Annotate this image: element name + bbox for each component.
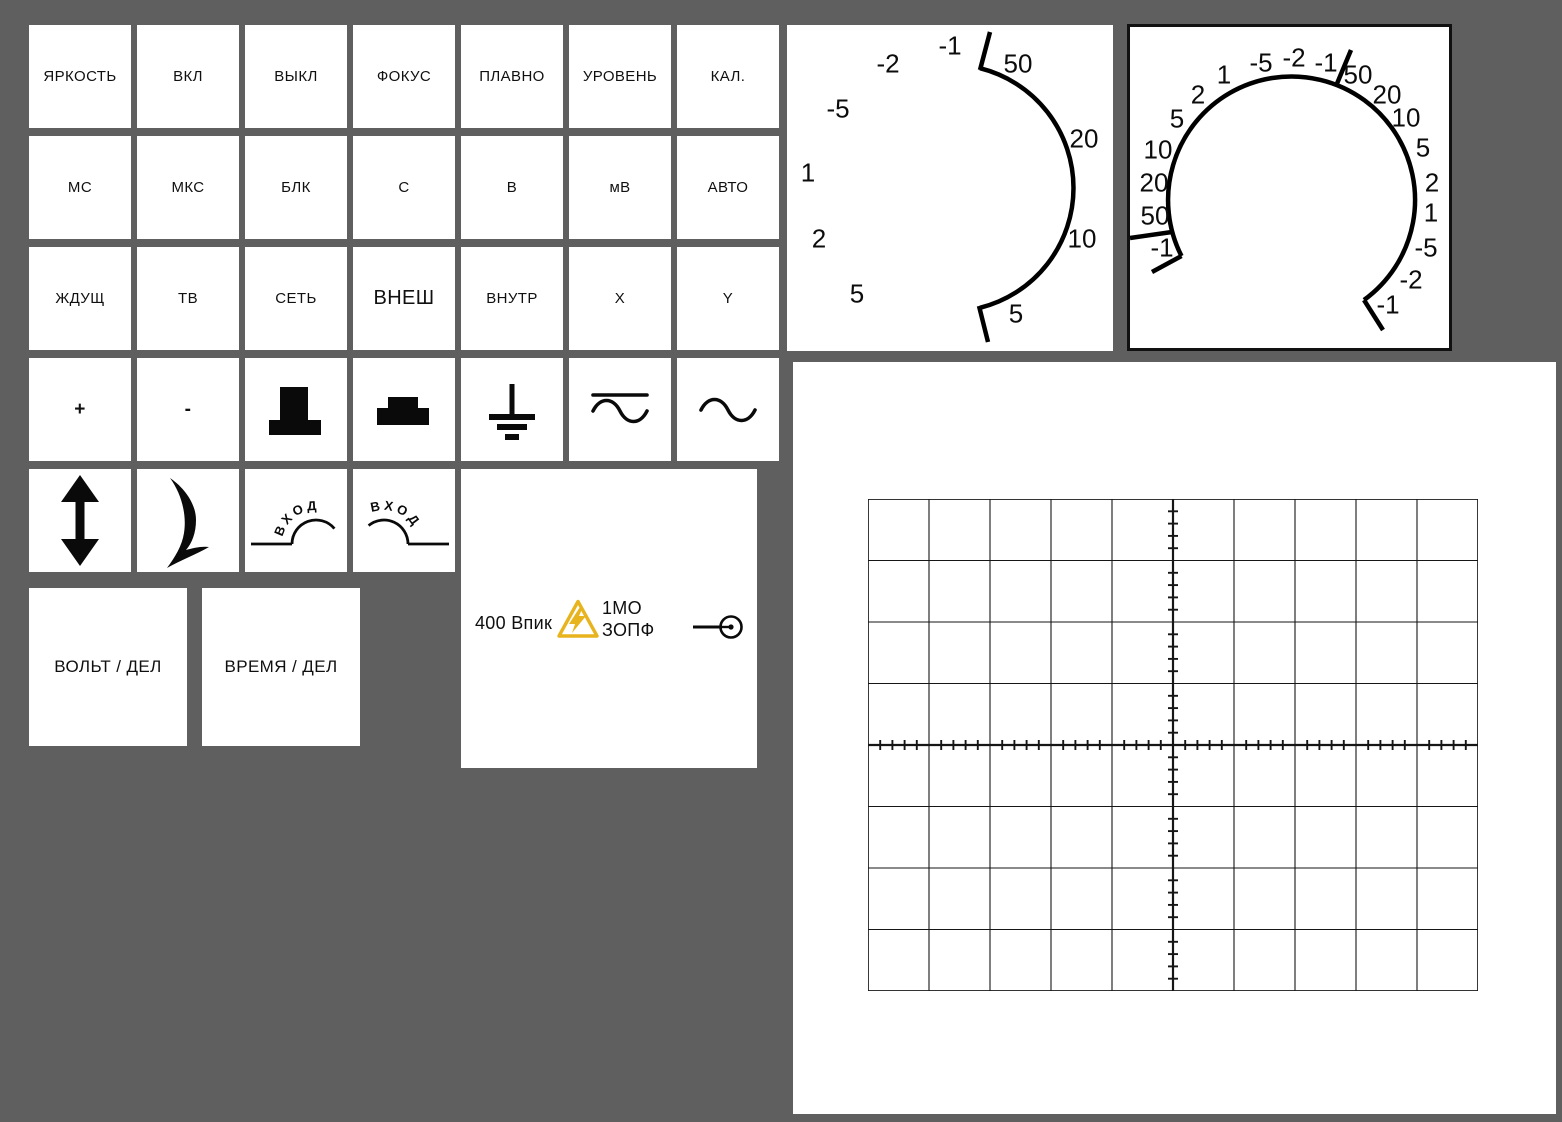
dial-scale-number: -5 (1414, 233, 1437, 264)
button-ac-coupling[interactable] (677, 358, 779, 461)
dial-scale-number: 5 (1170, 104, 1184, 135)
input-label-right: ВХОД (369, 498, 424, 531)
button-level[interactable]: УРОВЕНЬ (569, 25, 671, 128)
dial-scale-number: 20 (1140, 168, 1169, 199)
vertical-arrow-icon (29, 469, 131, 572)
button-step-tall[interactable] (245, 358, 347, 461)
button-mains[interactable]: СЕТЬ (245, 247, 347, 350)
dial-scale-number: 5 (1416, 133, 1430, 164)
volt-div-panel[interactable]: ВОЛЬТ / ДЕЛ (29, 588, 187, 746)
dial-scale-number: -2 (1399, 265, 1422, 296)
button-plus[interactable]: + (29, 358, 131, 461)
dial-scale-number: 2 (812, 224, 826, 255)
dial-scale-number: 10 (1392, 103, 1421, 134)
button-minus[interactable]: - (137, 358, 239, 461)
button-external[interactable]: ВНЕШ (353, 247, 455, 350)
button-ground[interactable] (461, 358, 563, 461)
dial-scale-number: 1 (1424, 198, 1438, 229)
button-on[interactable]: ВКЛ (137, 25, 239, 128)
sine-icon (677, 358, 779, 461)
button-v[interactable]: В (461, 136, 563, 239)
input-ratings-panel: 400 Впик 1МО ЗОПФ (461, 469, 757, 768)
button-mv[interactable]: мВ (569, 136, 671, 239)
ac-dc-icon (569, 358, 671, 461)
probe-connector-icon (693, 613, 749, 641)
button-beam-curve[interactable] (137, 469, 239, 572)
dial-scale-number: -1 (1150, 233, 1173, 264)
dial-scale-number: -2 (876, 49, 899, 80)
dial-scale-number: -1 (938, 31, 961, 62)
graticule-grid (868, 499, 1478, 991)
dial-scale-number: 5 (850, 279, 864, 310)
step-low-icon (353, 358, 455, 461)
button-s[interactable]: С (353, 136, 455, 239)
dial-scale-number: 2 (1425, 168, 1439, 199)
input-arc-left-icon: ВХОД (245, 469, 347, 572)
dial-scale-number: 2 (1191, 80, 1205, 111)
button-step-low[interactable] (353, 358, 455, 461)
button-input-right[interactable]: ВХОД (353, 469, 455, 572)
button-auto[interactable]: АВТО (677, 136, 779, 239)
crt-graticule-panel (793, 362, 1556, 1114)
dial-scale-number: 10 (1144, 135, 1173, 166)
dial-scale-number: -5 (1249, 48, 1272, 79)
high-voltage-warning-icon (556, 598, 600, 640)
input-arc-right-icon: ВХОД (353, 469, 455, 572)
button-focus[interactable]: ФОКУС (353, 25, 455, 128)
input-impedance-label: 1МО ЗОПФ (602, 597, 655, 641)
button-brightness[interactable]: ЯРКОСТЬ (29, 25, 131, 128)
dial-scale-number: 50 (1004, 49, 1033, 80)
time-div-label: ВРЕМЯ / ДЕЛ (224, 657, 337, 677)
volt-div-label: ВОЛЬТ / ДЕЛ (54, 657, 161, 677)
button-smooth[interactable]: ПЛАВНО (461, 25, 563, 128)
dial-scale-number: 50 (1141, 201, 1170, 232)
dial-scale-number: -5 (826, 94, 849, 125)
dial-scale-number: 1 (1217, 60, 1231, 91)
button-blanking[interactable]: БЛК (245, 136, 347, 239)
dial-scale-number: -1 (1376, 290, 1399, 321)
dial-scale-number: -1 (1314, 48, 1337, 79)
button-input-left[interactable]: ВХОД (245, 469, 347, 572)
dial-scale-number: 20 (1070, 124, 1099, 155)
button-tv[interactable]: ТВ (137, 247, 239, 350)
crescent-icon (137, 469, 239, 572)
dial-scale-number: 50 (1344, 60, 1373, 91)
dial-scale-number: 5 (1009, 299, 1023, 330)
button-triggered[interactable]: ЖДУЩ (29, 247, 131, 350)
button-us[interactable]: МКС (137, 136, 239, 239)
step-tall-icon (245, 358, 347, 461)
dial-scale-number: 10 (1068, 224, 1097, 255)
button-vertical-shift[interactable] (29, 469, 131, 572)
button-internal[interactable]: ВНУТР (461, 247, 563, 350)
time-div-dial-scale: -1502010521-5-2-1502010521-5-2-1 (1127, 24, 1452, 351)
time-div-panel[interactable]: ВРЕМЯ / ДЕЛ (202, 588, 360, 746)
dial-left-arc (787, 25, 1113, 351)
ground-icon (461, 358, 563, 461)
button-cal[interactable]: КАЛ. (677, 25, 779, 128)
button-y[interactable]: Y (677, 247, 779, 350)
dial-scale-number: -2 (1282, 43, 1305, 74)
max-voltage-label: 400 Впик (475, 613, 552, 634)
button-off[interactable]: ВЫКЛ (245, 25, 347, 128)
button-ac-dc-coupling[interactable] (569, 358, 671, 461)
button-x[interactable]: X (569, 247, 671, 350)
dial-scale-number: 1 (801, 158, 815, 189)
button-ms[interactable]: МС (29, 136, 131, 239)
volt-div-dial-scale: -1-2-51255020105 (787, 25, 1113, 351)
